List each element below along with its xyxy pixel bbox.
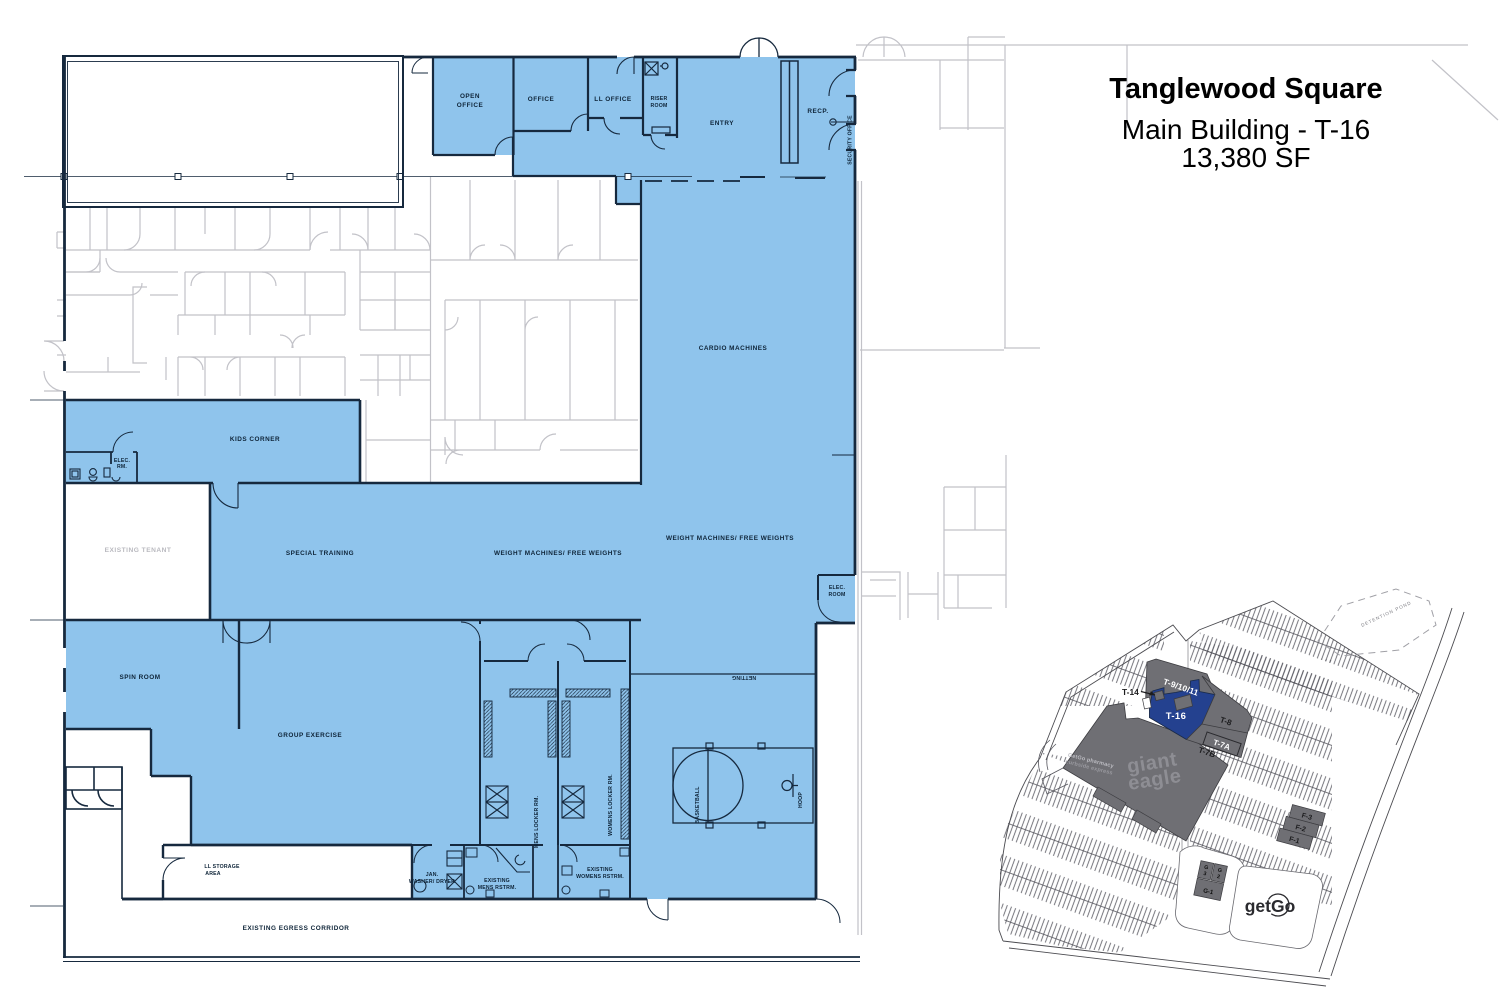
- svg-text:SECURITY OFFICE: SECURITY OFFICE: [848, 115, 854, 165]
- svg-text:SPIN ROOM: SPIN ROOM: [119, 674, 160, 681]
- svg-text:MENS RSTRM.: MENS RSTRM.: [478, 885, 517, 891]
- svg-text:OFFICE: OFFICE: [457, 102, 484, 109]
- svg-text:ROOM: ROOM: [651, 103, 668, 109]
- svg-text:OFFICE: OFFICE: [528, 96, 555, 103]
- svg-text:RM.: RM.: [117, 464, 127, 470]
- svg-text:ROOM: ROOM: [829, 592, 846, 598]
- svg-text:Tanglewood Square: Tanglewood Square: [1109, 73, 1382, 105]
- svg-text:JAN.: JAN.: [426, 872, 439, 878]
- svg-text:EXISTING EGRESS CORRIDOR: EXISTING EGRESS CORRIDOR: [243, 925, 350, 932]
- svg-text:RECP.: RECP.: [807, 108, 828, 115]
- svg-text:WASHER/ DRYER: WASHER/ DRYER: [409, 879, 455, 885]
- svg-text:LL STORAGE: LL STORAGE: [204, 864, 240, 870]
- svg-text:Main Building - T-16: Main Building - T-16: [1122, 114, 1371, 145]
- svg-text:NETTING: NETTING: [732, 674, 756, 680]
- svg-text:EXISTING: EXISTING: [587, 867, 613, 873]
- svg-text:WOMENS LOCKER RM.: WOMENS LOCKER RM.: [608, 774, 614, 836]
- svg-text:ELEC.: ELEC.: [829, 585, 846, 591]
- svg-text:LL OFFICE: LL OFFICE: [594, 96, 632, 103]
- svg-text:T-16: T-16: [1166, 711, 1187, 722]
- svg-text:CARDIO MACHINES: CARDIO MACHINES: [699, 345, 768, 352]
- svg-text:WOMENS RSTRM.: WOMENS RSTRM.: [576, 874, 624, 880]
- svg-text:KIDS CORNER: KIDS CORNER: [230, 436, 280, 443]
- svg-text:HOOP: HOOP: [798, 792, 804, 808]
- svg-text:T-14: T-14: [1122, 687, 1139, 697]
- svg-text:MENS LOCKER RM.: MENS LOCKER RM.: [534, 796, 540, 849]
- svg-text:WEIGHT MACHINES/ FREE WEIGHTS: WEIGHT MACHINES/ FREE WEIGHTS: [494, 550, 622, 557]
- svg-text:SPECIAL TRAINING: SPECIAL TRAINING: [286, 550, 354, 557]
- svg-text:GROUP EXERCISE: GROUP EXERCISE: [278, 732, 343, 739]
- svg-text:EXISTING TENANT: EXISTING TENANT: [105, 547, 172, 554]
- svg-text:WEIGHT MACHINES/ FREE WEIGHTS: WEIGHT MACHINES/ FREE WEIGHTS: [666, 535, 794, 542]
- svg-text:OPEN: OPEN: [460, 93, 480, 100]
- svg-text:EXISTING: EXISTING: [484, 878, 510, 884]
- svg-text:13,380 SF: 13,380 SF: [1181, 142, 1310, 173]
- svg-text:ENTRY: ENTRY: [710, 120, 734, 127]
- svg-text:RISER: RISER: [651, 96, 668, 102]
- svg-text:BASKETBALL: BASKETBALL: [695, 786, 701, 824]
- svg-text:AREA: AREA: [205, 871, 221, 877]
